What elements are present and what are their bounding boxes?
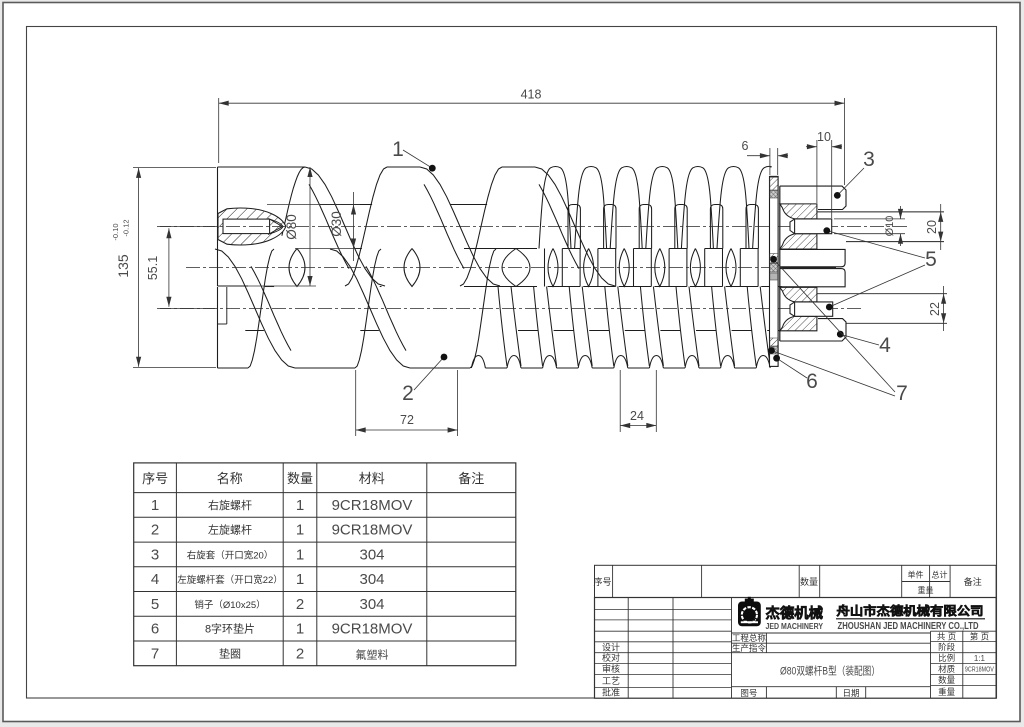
svg-text:序号: 序号 <box>593 576 611 587</box>
svg-text:5: 5 <box>151 596 159 613</box>
svg-text:2: 2 <box>151 522 159 539</box>
svg-text:135: 135 <box>115 254 131 278</box>
svg-text:Ø30: Ø30 <box>329 211 344 237</box>
svg-text:校对: 校对 <box>602 652 620 663</box>
svg-text:2: 2 <box>402 382 414 405</box>
svg-text:418: 418 <box>521 88 542 102</box>
svg-text:审核: 审核 <box>602 663 620 674</box>
svg-text:22: 22 <box>928 302 942 316</box>
svg-text:1: 1 <box>296 497 304 514</box>
svg-text:数量: 数量 <box>938 675 956 685</box>
svg-text:比例: 比例 <box>938 653 955 663</box>
svg-text:设计: 设计 <box>602 641 620 652</box>
svg-text:左旋螺杆: 左旋螺杆 <box>208 523 252 537</box>
svg-text:1: 1 <box>151 497 159 514</box>
svg-text:工艺: 工艺 <box>602 676 620 686</box>
svg-text:6: 6 <box>742 139 749 153</box>
svg-text:Ø80: Ø80 <box>284 214 299 240</box>
svg-text:4: 4 <box>879 334 891 357</box>
svg-text:材料: 材料 <box>359 471 385 486</box>
svg-text:9CR18MOV: 9CR18MOV <box>965 667 994 674</box>
svg-text:生产指令: 生产指令 <box>732 643 767 653</box>
svg-text:第 页: 第 页 <box>970 632 989 642</box>
svg-text:材质: 材质 <box>938 664 956 674</box>
svg-text:3: 3 <box>151 546 159 563</box>
svg-text:2: 2 <box>296 645 304 662</box>
svg-text:10: 10 <box>817 130 831 144</box>
svg-text:-0.10: -0.10 <box>111 223 120 240</box>
svg-text:20: 20 <box>925 220 939 234</box>
svg-text:Ø80双螺杆B型（装配图）: Ø80双螺杆B型（装配图） <box>780 664 880 678</box>
svg-text:氟塑料: 氟塑料 <box>356 647 389 661</box>
svg-text:批准: 批准 <box>602 687 620 698</box>
svg-text:3: 3 <box>863 148 875 171</box>
svg-text:55.1: 55.1 <box>146 256 160 280</box>
svg-text:1: 1 <box>296 621 304 638</box>
svg-text:6: 6 <box>806 370 818 393</box>
svg-text:72: 72 <box>400 413 414 427</box>
svg-text:杰德机械: 杰德机械 <box>766 605 824 621</box>
svg-text:304: 304 <box>359 546 384 563</box>
svg-text:右旋套（开口宽20）: 右旋套（开口宽20） <box>187 549 274 561</box>
svg-text:备注: 备注 <box>458 471 484 486</box>
svg-text:1: 1 <box>392 138 404 161</box>
svg-text:图号: 图号 <box>740 688 757 698</box>
svg-text:304: 304 <box>359 571 384 588</box>
svg-text:9CR18MOV: 9CR18MOV <box>332 621 413 638</box>
svg-text:24: 24 <box>630 409 644 423</box>
svg-text:单件: 单件 <box>908 570 924 580</box>
svg-text:阶段: 阶段 <box>938 642 956 652</box>
svg-text:6: 6 <box>151 621 159 638</box>
svg-text:7: 7 <box>151 645 159 662</box>
svg-text:销子（Ø10x25）: 销子（Ø10x25） <box>194 599 265 611</box>
svg-text:ZHOUSHAN JED MACHINERY CO.,LTD: ZHOUSHAN JED MACHINERY CO.,LTD <box>838 621 979 632</box>
svg-text:JED MACHINERY: JED MACHINERY <box>766 621 824 631</box>
svg-text:1: 1 <box>296 522 304 539</box>
svg-text:工程总称: 工程总称 <box>732 633 767 643</box>
svg-text:-0.12: -0.12 <box>122 219 131 236</box>
svg-text:9CR18MOV: 9CR18MOV <box>332 497 413 514</box>
svg-text:2: 2 <box>296 596 304 613</box>
svg-text:共 页: 共 页 <box>937 632 956 642</box>
svg-text:1: 1 <box>296 571 304 588</box>
svg-text:重量: 重量 <box>918 585 934 595</box>
svg-text:右旋螺杆: 右旋螺杆 <box>208 498 252 512</box>
svg-text:5: 5 <box>925 248 937 271</box>
svg-text:304: 304 <box>359 596 384 613</box>
svg-text:备注: 备注 <box>964 576 982 587</box>
svg-text:日期: 日期 <box>842 688 859 698</box>
svg-text:1:1: 1:1 <box>974 654 986 663</box>
svg-text:7: 7 <box>896 382 908 405</box>
svg-text:Ø10: Ø10 <box>884 216 896 237</box>
svg-text:8字环垫片: 8字环垫片 <box>205 622 255 636</box>
svg-text:重量: 重量 <box>938 687 956 697</box>
svg-text:4: 4 <box>151 571 159 588</box>
svg-text:数量: 数量 <box>800 576 818 587</box>
svg-text:名称: 名称 <box>217 471 243 486</box>
svg-text:垫圈: 垫圈 <box>219 646 241 660</box>
svg-text:舟山市杰德机械有限公司: 舟山市杰德机械有限公司 <box>837 603 984 618</box>
svg-text:序号: 序号 <box>142 471 168 486</box>
svg-text:1: 1 <box>296 546 304 563</box>
svg-text:9CR18MOV: 9CR18MOV <box>332 522 413 539</box>
svg-text:左旋螺杆套（开口宽22）: 左旋螺杆套（开口宽22） <box>177 574 283 586</box>
svg-text:数量: 数量 <box>287 471 313 486</box>
svg-text:总计: 总计 <box>932 570 948 580</box>
